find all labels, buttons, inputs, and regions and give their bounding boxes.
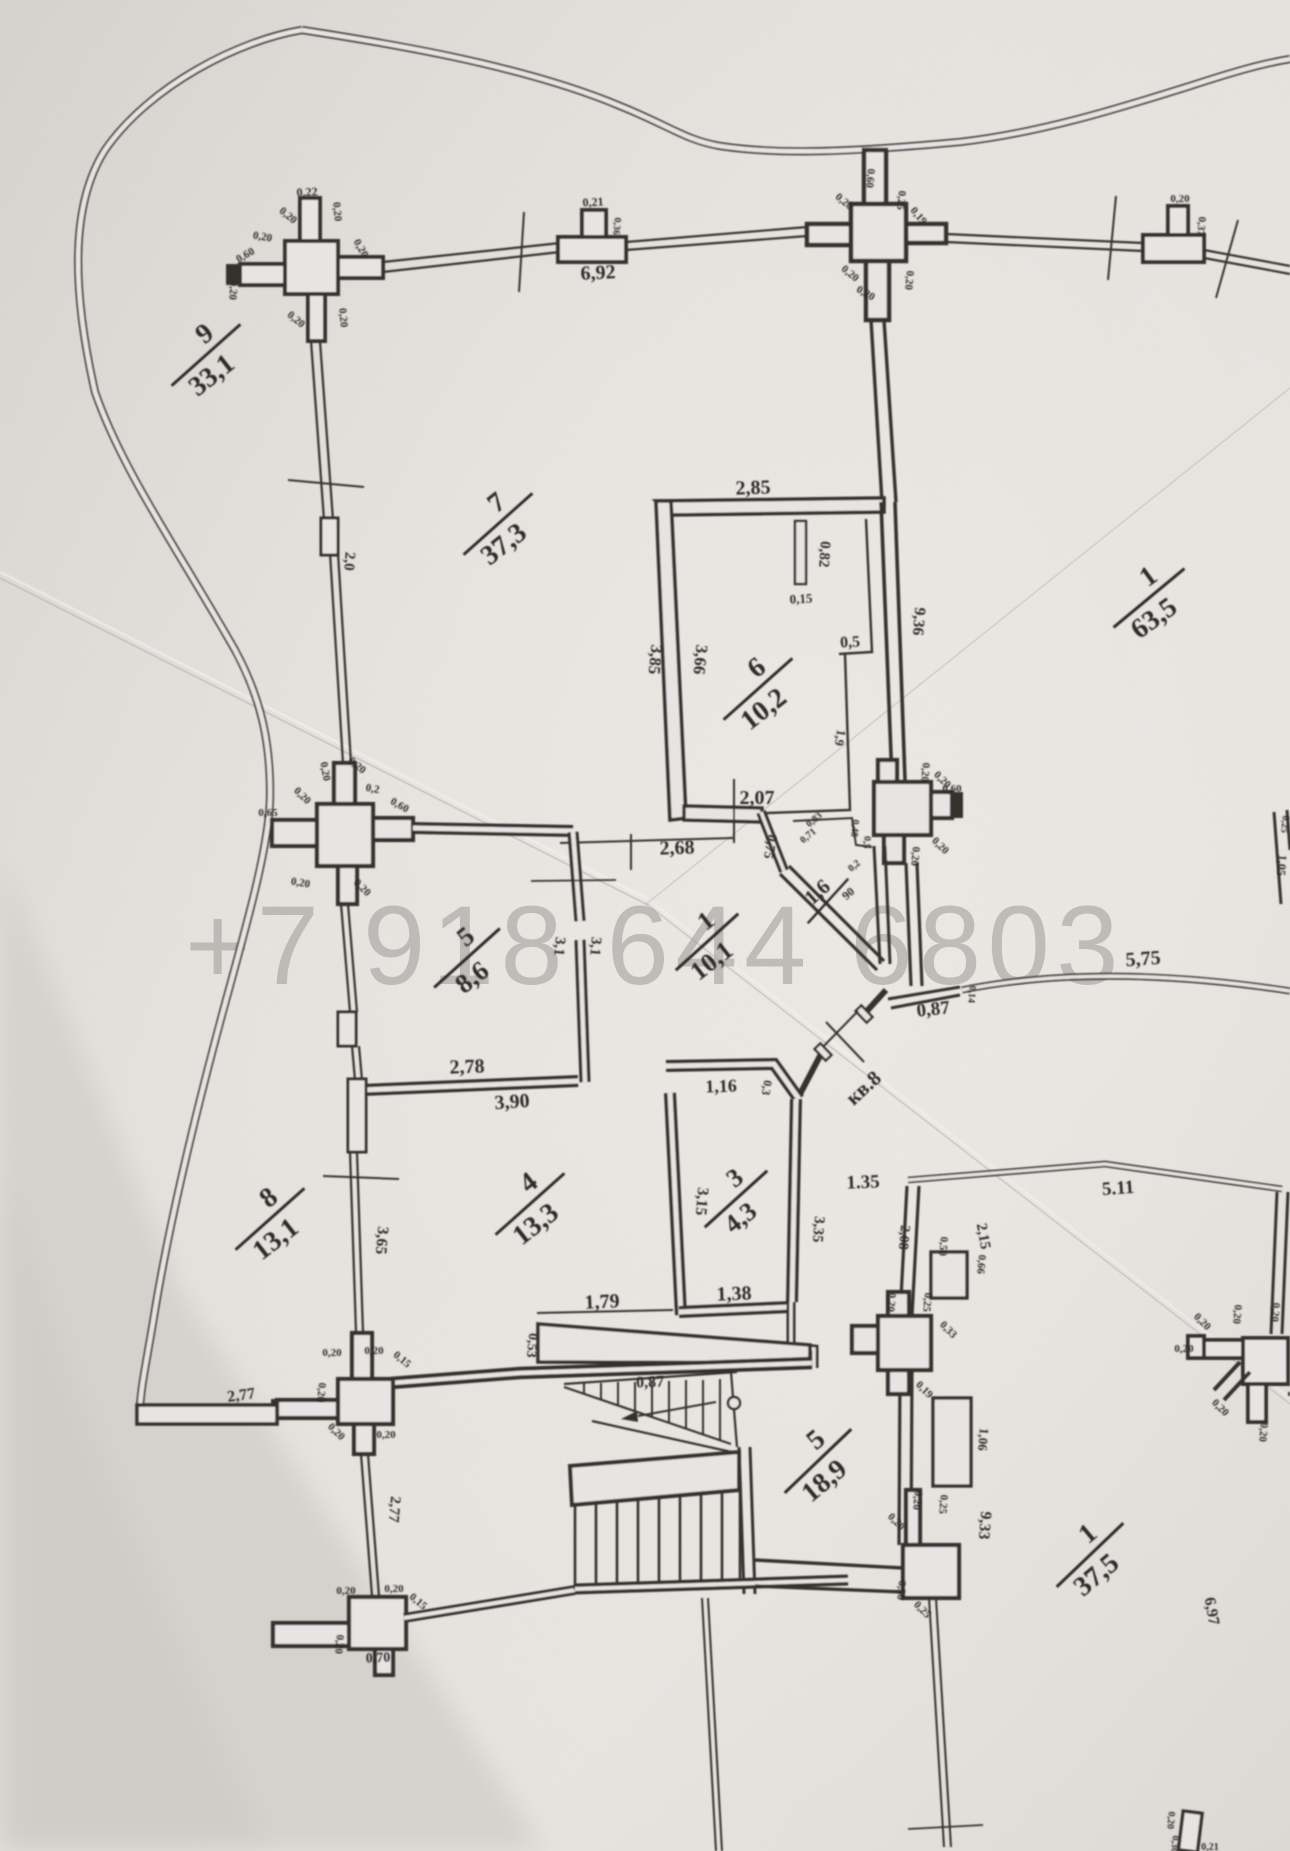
svg-text:0,20: 0,20 [1256, 1422, 1270, 1443]
svg-text:0,20: 0,20 [322, 1347, 342, 1359]
svg-text:2,07: 2,07 [740, 787, 775, 809]
svg-text:0,20: 0,20 [332, 1634, 346, 1655]
svg-text:2,08: 2,08 [895, 1224, 912, 1250]
svg-text:2,68: 2,68 [659, 836, 695, 859]
svg-text:9,33: 9,33 [975, 1511, 994, 1540]
svg-text:2,85: 2,85 [735, 476, 771, 499]
svg-text:0,53: 0,53 [523, 1332, 540, 1358]
svg-text:3,66: 3,66 [689, 644, 711, 676]
svg-text:1,16: 1,16 [705, 1075, 737, 1096]
svg-text:0,20: 0,20 [336, 308, 350, 329]
svg-text:1,06: 1,06 [975, 1427, 992, 1451]
svg-text:0,20: 0,20 [314, 1382, 328, 1403]
svg-text:0,5: 0,5 [840, 633, 861, 651]
svg-text:0,66: 0,66 [974, 1254, 988, 1275]
svg-text:9,36: 9,36 [909, 607, 928, 636]
svg-text:3,85: 3,85 [644, 644, 666, 676]
svg-text:0,25: 0,25 [1278, 815, 1290, 833]
svg-text:2,77: 2,77 [385, 1496, 403, 1524]
svg-text:0,50: 0,50 [894, 1580, 908, 1601]
svg-text:0,20: 0,20 [884, 1292, 898, 1313]
svg-text:0,22: 0,22 [296, 184, 318, 199]
svg-text:0,25: 0,25 [920, 1292, 934, 1313]
svg-text:3,35: 3,35 [809, 1216, 827, 1244]
svg-text:0,20: 0,20 [364, 1345, 384, 1357]
svg-text:1,05: 1,05 [1274, 854, 1290, 876]
svg-text:0,87: 0,87 [636, 1374, 665, 1392]
svg-text:0,60: 0,60 [863, 168, 877, 189]
svg-text:0,20: 0,20 [226, 280, 240, 301]
svg-text:1,79: 1,79 [584, 1290, 620, 1314]
svg-text:1,38: 1,38 [716, 1282, 752, 1305]
svg-text:0,20: 0,20 [908, 846, 922, 867]
svg-text:0,2: 0,2 [365, 782, 381, 796]
svg-text:0,70: 0,70 [365, 1650, 390, 1666]
svg-text:0,21: 0,21 [582, 194, 604, 209]
svg-text:3,90: 3,90 [494, 1090, 530, 1114]
svg-text:5.11: 5.11 [1101, 1177, 1135, 1200]
svg-text:0,37: 0,37 [1194, 216, 1208, 237]
svg-text:5,75: 5,75 [1125, 947, 1161, 971]
svg-text:0,48: 0,48 [848, 819, 860, 837]
svg-text:3,65: 3,65 [372, 1226, 391, 1255]
svg-text:0,5: 0,5 [860, 836, 872, 849]
svg-text:2,0: 2,0 [340, 551, 357, 571]
svg-text:0,82: 0,82 [815, 541, 833, 568]
svg-text:0,20: 0,20 [376, 1429, 396, 1441]
svg-text:0,20: 0,20 [910, 1490, 924, 1511]
svg-text:0,20: 0,20 [902, 270, 916, 291]
svg-text:3,15: 3,15 [692, 1187, 711, 1216]
svg-text:0,20: 0,20 [330, 202, 344, 223]
svg-text:0,20: 0,20 [1164, 1811, 1176, 1829]
svg-text:0,65: 0,65 [258, 807, 278, 819]
svg-text:0,36: 0,36 [610, 217, 622, 235]
svg-text:0,3: 0,3 [759, 1079, 775, 1096]
svg-text:0,15: 0,15 [789, 590, 813, 606]
svg-text:0,60: 0,60 [942, 783, 962, 795]
svg-text:0,20: 0,20 [1174, 1343, 1194, 1355]
svg-text:6,92: 6,92 [580, 261, 616, 285]
svg-text:0,20: 0,20 [1230, 1304, 1244, 1325]
svg-text:0,25: 0,25 [936, 1494, 950, 1515]
svg-text:3,1: 3,1 [550, 936, 568, 956]
svg-text:0,20: 0,20 [384, 1583, 404, 1595]
svg-text:2,78: 2,78 [449, 1055, 485, 1078]
svg-text:0,14: 0,14 [965, 985, 977, 1003]
svg-text:0,25: 0,25 [894, 190, 908, 211]
svg-text:0,21: 0,21 [1201, 1842, 1219, 1851]
svg-text:0,87: 0,87 [916, 997, 952, 1021]
svg-text:0,20: 0,20 [1170, 193, 1190, 205]
svg-text:0,30: 0,30 [1168, 1835, 1180, 1851]
svg-text:1.35: 1.35 [846, 1171, 880, 1193]
svg-text:0,20: 0,20 [336, 1585, 356, 1597]
svg-text:0,20: 0,20 [918, 762, 932, 783]
svg-text:0,50: 0,50 [936, 1236, 950, 1257]
svg-text:1,9: 1,9 [832, 728, 850, 747]
svg-text:0,20: 0,20 [1268, 1302, 1282, 1323]
svg-text:3,1: 3,1 [586, 936, 604, 956]
